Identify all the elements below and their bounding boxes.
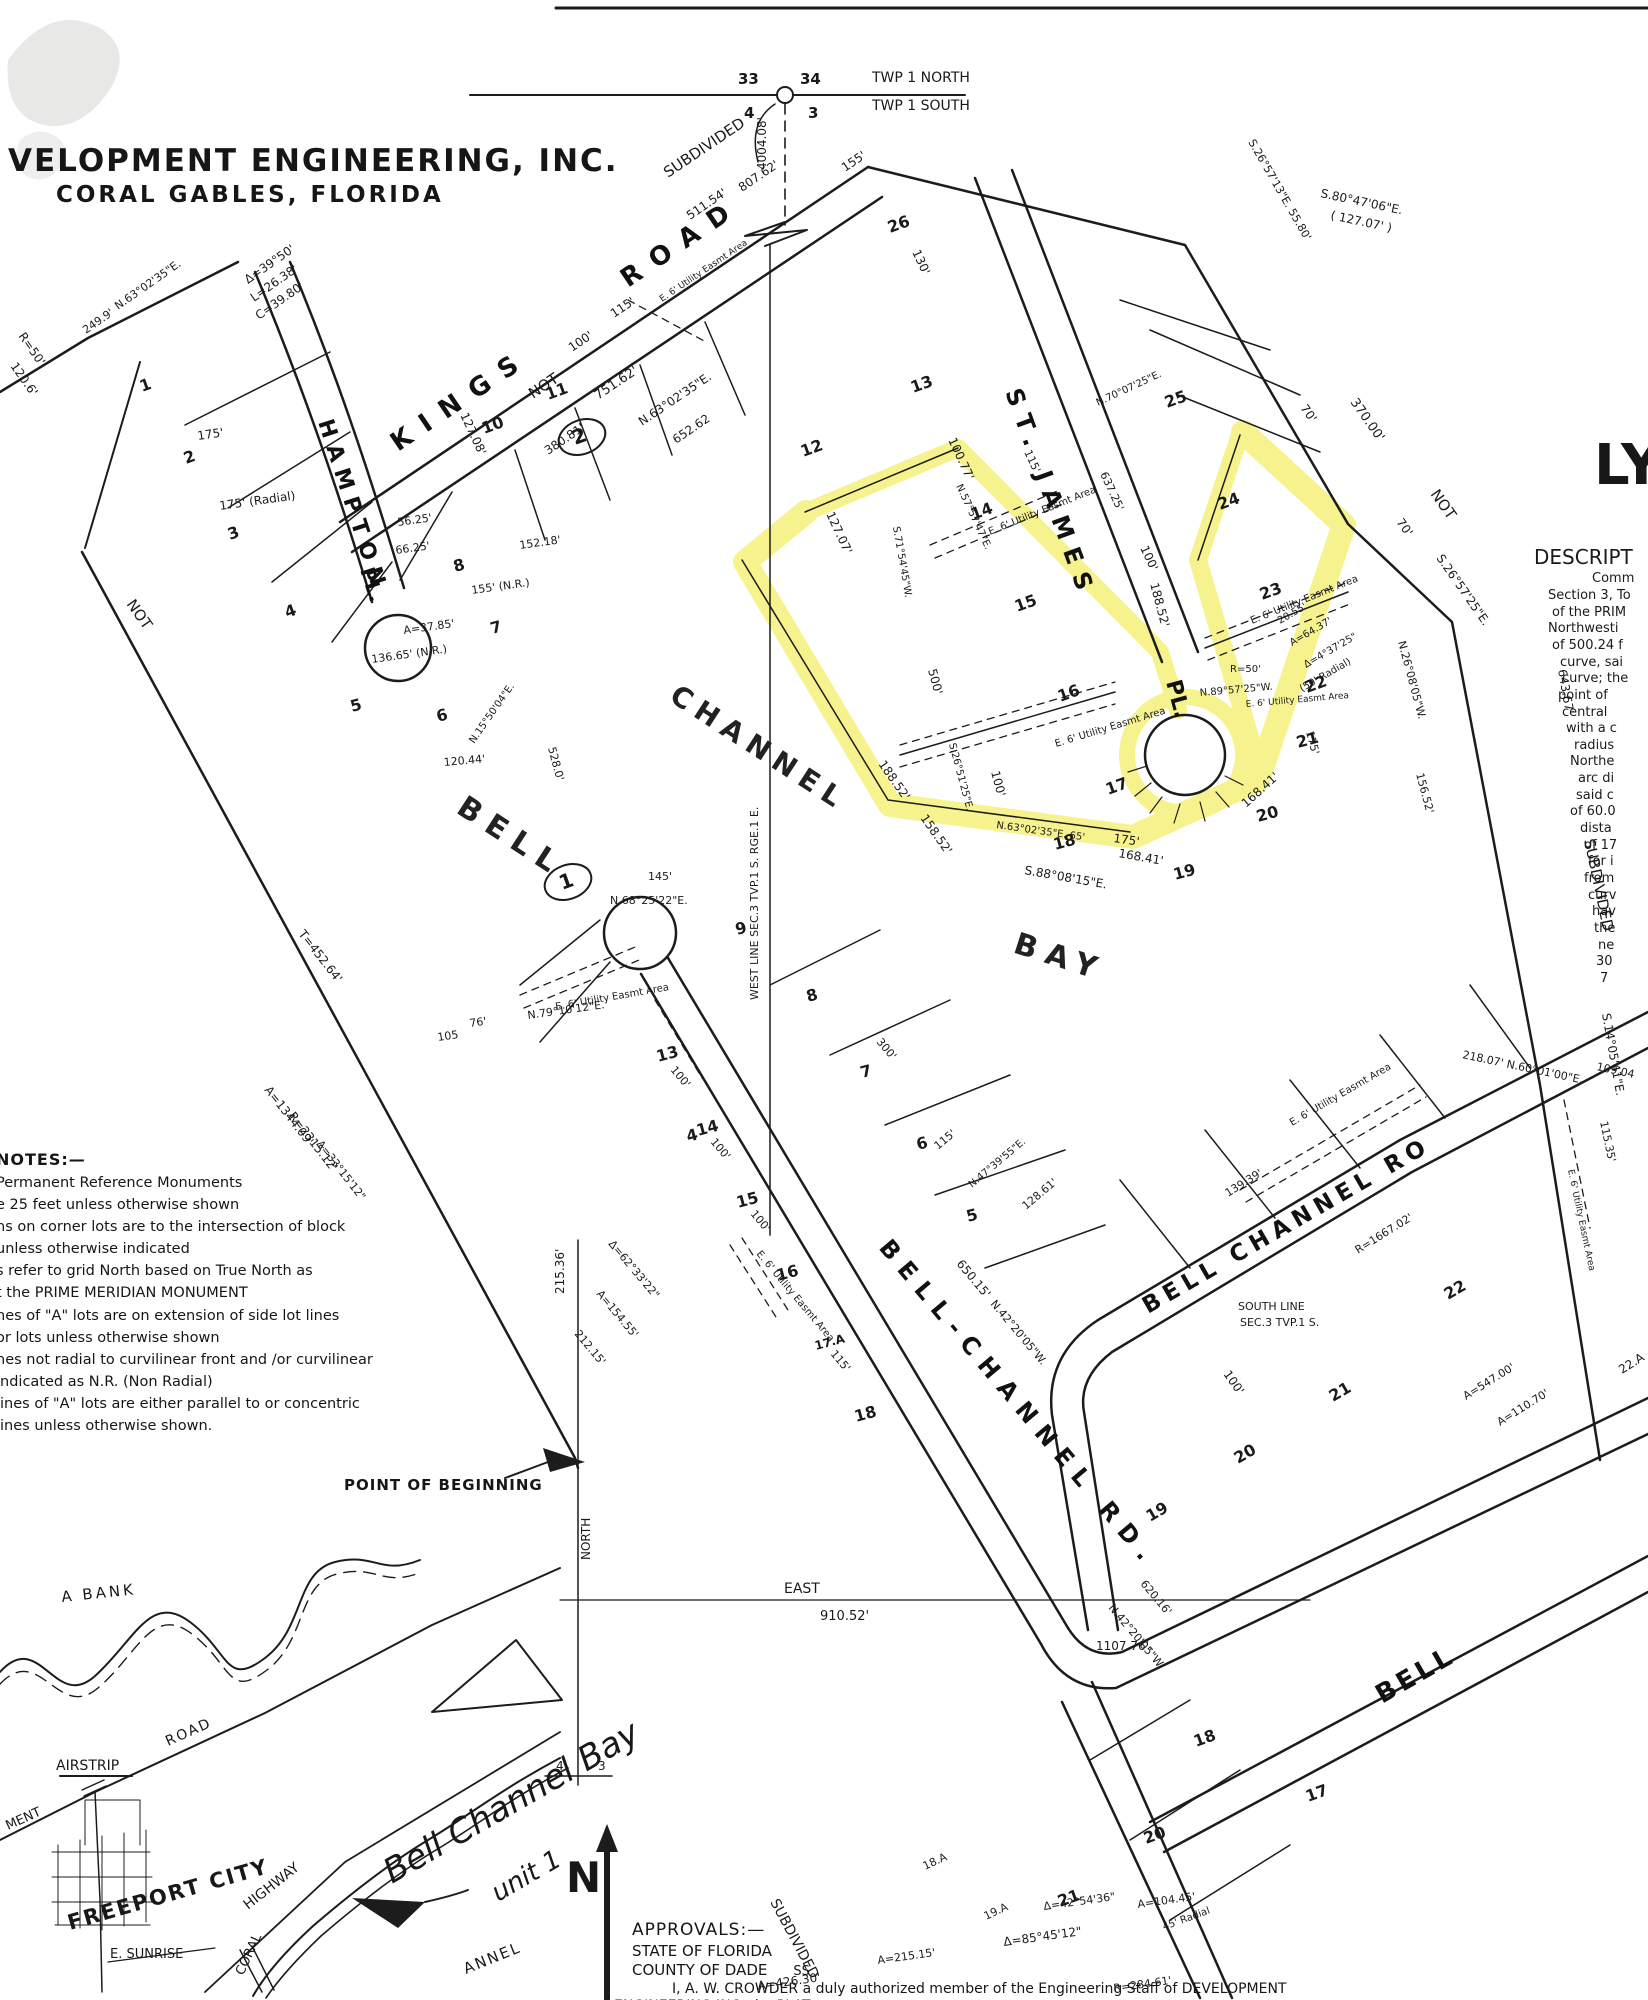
map-annotation: 168.41' xyxy=(1117,846,1164,868)
map-annotation: 66.25' xyxy=(395,539,431,557)
map-annotation: 500' xyxy=(925,667,945,696)
lot-number: 5 xyxy=(964,1205,980,1226)
map-annotation: 4 xyxy=(556,1759,564,1773)
map-annotation: A=104.45' xyxy=(1137,1890,1197,1911)
notes-line: ns on corner lots are to the intersectio… xyxy=(0,1216,466,1238)
map-annotation: 100' xyxy=(1221,1368,1247,1397)
map-annotation: 7 xyxy=(1600,971,1608,986)
map-annotation: 215.36' xyxy=(553,1249,567,1294)
lot-number: 18 xyxy=(852,1402,878,1426)
lot-number: 22 xyxy=(1441,1276,1470,1304)
map-annotation: 620.16' xyxy=(1138,1578,1175,1618)
map-annotation: 910.52' xyxy=(820,1609,869,1624)
north-arrow-label: N xyxy=(566,1853,601,1902)
section-number-nw: 33 xyxy=(738,70,759,88)
lot-number: 5 xyxy=(348,695,364,716)
north-arrow xyxy=(596,1824,618,2000)
plat-map-sheet: 33 34 4 3 TWP 1 NORTH TWP 1 SOUTH KINGS … xyxy=(0,0,1648,2000)
inset-sunrise-label: E. SUNRISE xyxy=(110,1947,183,1962)
map-annotation: 175' (Radial) xyxy=(218,488,296,513)
map-annotation: 56.25' xyxy=(397,511,433,529)
map-annotation: 115' xyxy=(608,294,638,320)
map-annotation: 175' xyxy=(196,425,224,443)
map-annotation: 528.0' xyxy=(545,745,566,782)
inset-script-line2: unit 1 xyxy=(487,1844,567,1908)
map-annotation: 188.52' xyxy=(1147,581,1172,628)
lot-number: 17.A xyxy=(813,1331,847,1353)
point-of-beginning-label: POINT OF BEGINNING xyxy=(344,1476,543,1494)
inset-freeport-label: FREEPORT CITY xyxy=(65,1854,272,1934)
map-annotation: 145' xyxy=(648,870,672,883)
map-annotation: S.88°08'15"E. xyxy=(1023,863,1108,891)
map-annotation: 105 xyxy=(437,1028,460,1044)
map-annotation: point of xyxy=(1558,688,1608,703)
map-annotation: A=547.00' xyxy=(1461,1361,1517,1403)
map-annotation: N.15°50'04"E. xyxy=(467,682,517,746)
map-annotation: N.47°39'55"E. xyxy=(967,1136,1028,1190)
map-annotation: curve, sai xyxy=(1560,655,1623,670)
lot-number: 13 xyxy=(654,1042,680,1066)
notes-line: e 25 feet unless otherwise shown xyxy=(0,1194,466,1216)
plat-fixed-text: 33 34 4 3 TWP 1 NORTH TWP 1 SOUTH KINGS … xyxy=(4,70,1648,1978)
lot-number: 9 xyxy=(733,918,749,939)
map-annotation: 156.52' xyxy=(1413,771,1436,814)
map-annotation: 212.15' xyxy=(572,1328,609,1368)
map-annotation: curve; the xyxy=(1562,671,1628,686)
map-annotation: 18.A xyxy=(921,1850,950,1873)
inset-airstrip-label: AIRSTRIP xyxy=(56,1758,119,1774)
inset-ment-label: MENT xyxy=(4,1805,44,1834)
map-annotation: SOUTH LINE xyxy=(1238,1300,1305,1313)
map-annotation: E. 6' Utility Easmt Area xyxy=(1054,706,1167,750)
notes-line: or lots unless otherwise shown xyxy=(0,1327,466,1349)
map-annotation: E. 6' Utility Easmt Area xyxy=(1288,1062,1393,1129)
map-annotation: hav xyxy=(1592,904,1616,919)
inset-location-map xyxy=(0,1559,568,1998)
township-north-label: TWP 1 NORTH xyxy=(871,70,970,86)
lot-number: 26 xyxy=(885,211,912,236)
inset-channel-label: ANNEL xyxy=(461,1938,524,1977)
map-annotation: SEC.3 TVP.1 S. xyxy=(1240,1316,1319,1329)
map-annotation: SUBDIVIDED xyxy=(660,114,748,182)
map-annotation: 155' (N.R.) xyxy=(471,576,531,597)
map-annotation: N.63°02'35"E. xyxy=(112,257,183,312)
map-annotation: of 17 xyxy=(1584,838,1617,853)
approvals-heading: APPROVALS:— xyxy=(632,1920,1286,1942)
big-partial-label: LY xyxy=(1594,433,1648,498)
map-annotation: Northwesti xyxy=(1548,621,1618,636)
map-annotation: for i xyxy=(1588,854,1614,869)
water-label-bell: BELL xyxy=(451,789,572,885)
map-annotation: 136.65' (N.R.) xyxy=(371,643,448,666)
map-annotation: N.26°08'05"W. xyxy=(1395,639,1428,720)
map-annotation: DESCRIPT xyxy=(1534,545,1634,569)
map-annotation: with a c xyxy=(1566,721,1617,736)
map-annotation: NORTH xyxy=(579,1518,593,1560)
lot-number: 19 xyxy=(1143,1498,1172,1526)
map-annotation: A=154.55' xyxy=(594,1288,641,1341)
inset-bank-label: A BANK xyxy=(61,1580,137,1606)
map-annotation: 3 xyxy=(598,1759,606,1773)
lot-number: 17 xyxy=(1303,1780,1330,1805)
notes-line: Permanent Reference Monuments xyxy=(0,1172,466,1194)
map-annotation: the xyxy=(1594,921,1615,936)
block-number-1: 1 xyxy=(556,867,577,894)
map-annotation: 76' xyxy=(469,1015,488,1030)
map-annotation: ne xyxy=(1598,938,1614,953)
approvals-state: STATE OF FLORIDA xyxy=(632,1942,1286,1961)
notes-line: nes not radial to curvilinear front and … xyxy=(0,1349,466,1371)
map-annotation: Δ=62°33'22" xyxy=(606,1238,662,1302)
notes-line: lines unless otherwise shown. xyxy=(0,1415,466,1437)
map-annotation: of 60.0 xyxy=(1570,804,1616,819)
map-annotation: 100' xyxy=(566,328,596,354)
map-annotation: central xyxy=(1562,705,1607,720)
map-annotations-layer: 4004.08'NOTSUBDIVIDED751.62'N.63°02'35"E… xyxy=(8,114,1648,1995)
map-annotation: 751.62' xyxy=(592,363,641,403)
map-annotation: NOT xyxy=(1427,486,1461,523)
lot-number: 6 xyxy=(434,705,450,726)
plat-map-canvas: 33 34 4 3 TWP 1 NORTH TWP 1 SOUTH KINGS … xyxy=(0,0,1648,2000)
map-annotation: WEST LINE SEC.3 TVP.1 S. RGE.1 E. xyxy=(748,807,761,1000)
lot-number: 7 xyxy=(858,1061,874,1082)
map-annotation: N.68°25'22"E. xyxy=(610,894,688,907)
map-annotation: 130' xyxy=(909,247,933,277)
map-annotation: S.26°57'13"E. 55.80' xyxy=(1245,137,1314,243)
map-annotation: from xyxy=(1584,871,1614,886)
approvals-body: I, A. W. CROWDER a duly authorized membe… xyxy=(672,1981,1286,1999)
map-annotation: S.26°57'25"E. xyxy=(1434,552,1493,628)
notes-block: NOTES:— Permanent Reference Monuments e … xyxy=(0,1148,466,1437)
notes-line: lines of "A" lots are either parallel to… xyxy=(0,1393,466,1415)
water-label-bay: BAY xyxy=(1010,926,1111,989)
street-bell-channel-rd: BELL-CHANNEL RD. xyxy=(873,1234,1164,1573)
map-annotation: 300' xyxy=(874,1036,899,1063)
notes-line: nes of "A" lots are on extension of side… xyxy=(0,1305,466,1327)
lot-number: 21 xyxy=(1326,1378,1355,1406)
inset-coral-label: CORAL xyxy=(233,1931,265,1978)
map-annotation: E. 6' Utility Easmt Area xyxy=(555,982,670,1013)
lot-number: 4 xyxy=(282,600,299,622)
map-annotation: 100' xyxy=(668,1064,693,1091)
map-annotation: Comm xyxy=(1592,571,1634,586)
map-annotation: 22.A xyxy=(1616,1350,1647,1377)
map-annotation: 70' xyxy=(1298,402,1320,425)
notes-line: t the PRIME MERIDIAN MONUMENT xyxy=(0,1282,466,1304)
notes-line: s refer to grid North based on True Nort… xyxy=(0,1260,466,1282)
map-annotation: N.70°07'25"E. xyxy=(1095,369,1164,409)
notes-heading: NOTES:— xyxy=(0,1148,466,1172)
approvals-county: COUNTY OF DADESS xyxy=(632,1961,1286,1981)
map-annotation: said c xyxy=(1576,788,1614,803)
notes-line: indicated as N.R. (Non Radial) xyxy=(0,1371,466,1393)
street-kings-road: ROAD xyxy=(615,191,747,294)
map-annotation: radius xyxy=(1574,738,1614,753)
township-south-label: TWP 1 SOUTH xyxy=(871,98,970,114)
lot-number: 8 xyxy=(451,555,467,576)
inset-road-label: ROAD xyxy=(163,1715,214,1749)
lot-number: 1 xyxy=(137,374,154,396)
lot-number: 25 xyxy=(1162,386,1189,411)
map-annotation: of the PRIM xyxy=(1552,605,1626,620)
map-annotation: curv xyxy=(1588,888,1617,903)
map-annotation: of 500.24 f xyxy=(1552,638,1623,653)
map-annotation: R=50' xyxy=(1230,664,1261,675)
lot-number: 20 xyxy=(1231,1440,1260,1468)
section-number-se: 3 xyxy=(808,104,818,122)
map-annotation: 127.07' xyxy=(823,509,855,556)
map-annotation: 115' xyxy=(932,1127,959,1152)
lot-number: 23 xyxy=(1257,578,1284,603)
lot-number: 18 xyxy=(1191,1725,1218,1750)
map-annotation: 128.61' xyxy=(1020,1176,1060,1213)
map-annotation: Section 3, To xyxy=(1548,588,1631,603)
map-annotation: arc di xyxy=(1578,771,1614,786)
map-annotation: 100' xyxy=(988,769,1008,798)
lot-number: 16 xyxy=(1055,680,1082,705)
lot-number: 19 xyxy=(1171,860,1197,884)
map-annotation: EAST xyxy=(784,1581,820,1597)
company-city: CORAL GABLES, FLORIDA xyxy=(56,181,619,210)
approvals-block: APPROVALS:— STATE OF FLORIDA COUNTY OF D… xyxy=(632,1920,1286,2000)
map-annotation: 370.00' xyxy=(1347,396,1387,445)
lot-number: 7 xyxy=(488,617,504,638)
map-annotation: dista xyxy=(1580,821,1612,836)
map-annotation: 115.35' xyxy=(1597,1120,1618,1163)
title-block: VELOPMENT ENGINEERING, INC. CORAL GABLES… xyxy=(8,142,619,210)
lot-number: 20 xyxy=(1254,802,1280,826)
lot-number: 6 xyxy=(914,1133,930,1154)
map-annotation: E. 6' Utility Easmt Area xyxy=(1565,1169,1596,1272)
lot-number: 16 xyxy=(774,1261,800,1285)
section-number-ne: 34 xyxy=(800,70,821,88)
section-number-sw: 4 xyxy=(744,104,754,122)
lot-number: 3 xyxy=(225,522,242,544)
map-annotation: N.42°20'05"W. xyxy=(1106,1602,1168,1672)
map-annotation: 30 xyxy=(1596,954,1613,969)
lot-number: 12 xyxy=(798,435,825,460)
lot-number: 8 xyxy=(804,985,820,1006)
lot-number: 15 xyxy=(1012,590,1039,615)
map-annotation: 115' xyxy=(828,1348,853,1375)
map-annotation: A=110.70' xyxy=(1495,1387,1551,1429)
map-annotation: S.71°54'45"W. xyxy=(890,526,913,599)
map-annotation: Northe xyxy=(1570,754,1614,769)
map-annotation: 100' xyxy=(708,1136,733,1163)
map-annotation: 70' xyxy=(1394,516,1416,539)
notes-line: unless otherwise indicated xyxy=(0,1238,466,1260)
map-annotation: 120.44' xyxy=(443,752,485,769)
map-annotation: 652.62 xyxy=(670,411,713,446)
map-annotation: R=1667.02' xyxy=(1353,1211,1415,1257)
map-annotation: 650.15' xyxy=(954,1257,994,1301)
lot-number: 10 xyxy=(479,412,506,437)
approvals-ss: SS xyxy=(793,1964,810,1981)
map-annotation: 152.18' xyxy=(519,533,562,552)
lot-number: 13 xyxy=(908,371,935,396)
company-name: VELOPMENT ENGINEERING, INC. xyxy=(8,142,619,181)
map-annotation: NOT xyxy=(123,596,157,633)
lot-number: 2 xyxy=(181,446,198,468)
